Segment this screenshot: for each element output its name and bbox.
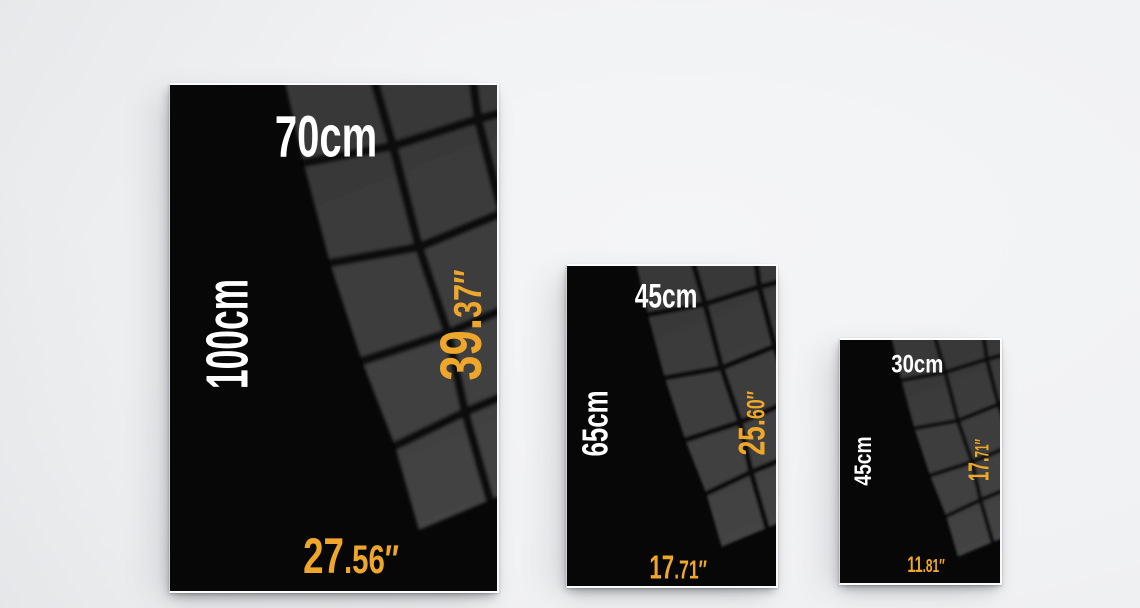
svg-text:27.56″: 27.56″ <box>303 529 399 585</box>
svg-text:17.71″: 17.71″ <box>649 549 707 585</box>
svg-text:70cm: 70cm <box>275 104 377 169</box>
svg-text:65cm: 65cm <box>575 390 615 456</box>
svg-text:45cm: 45cm <box>635 278 698 316</box>
svg-text:30cm: 30cm <box>891 349 943 378</box>
svg-text:100cm: 100cm <box>195 279 260 389</box>
svg-text:45cm: 45cm <box>849 436 877 485</box>
